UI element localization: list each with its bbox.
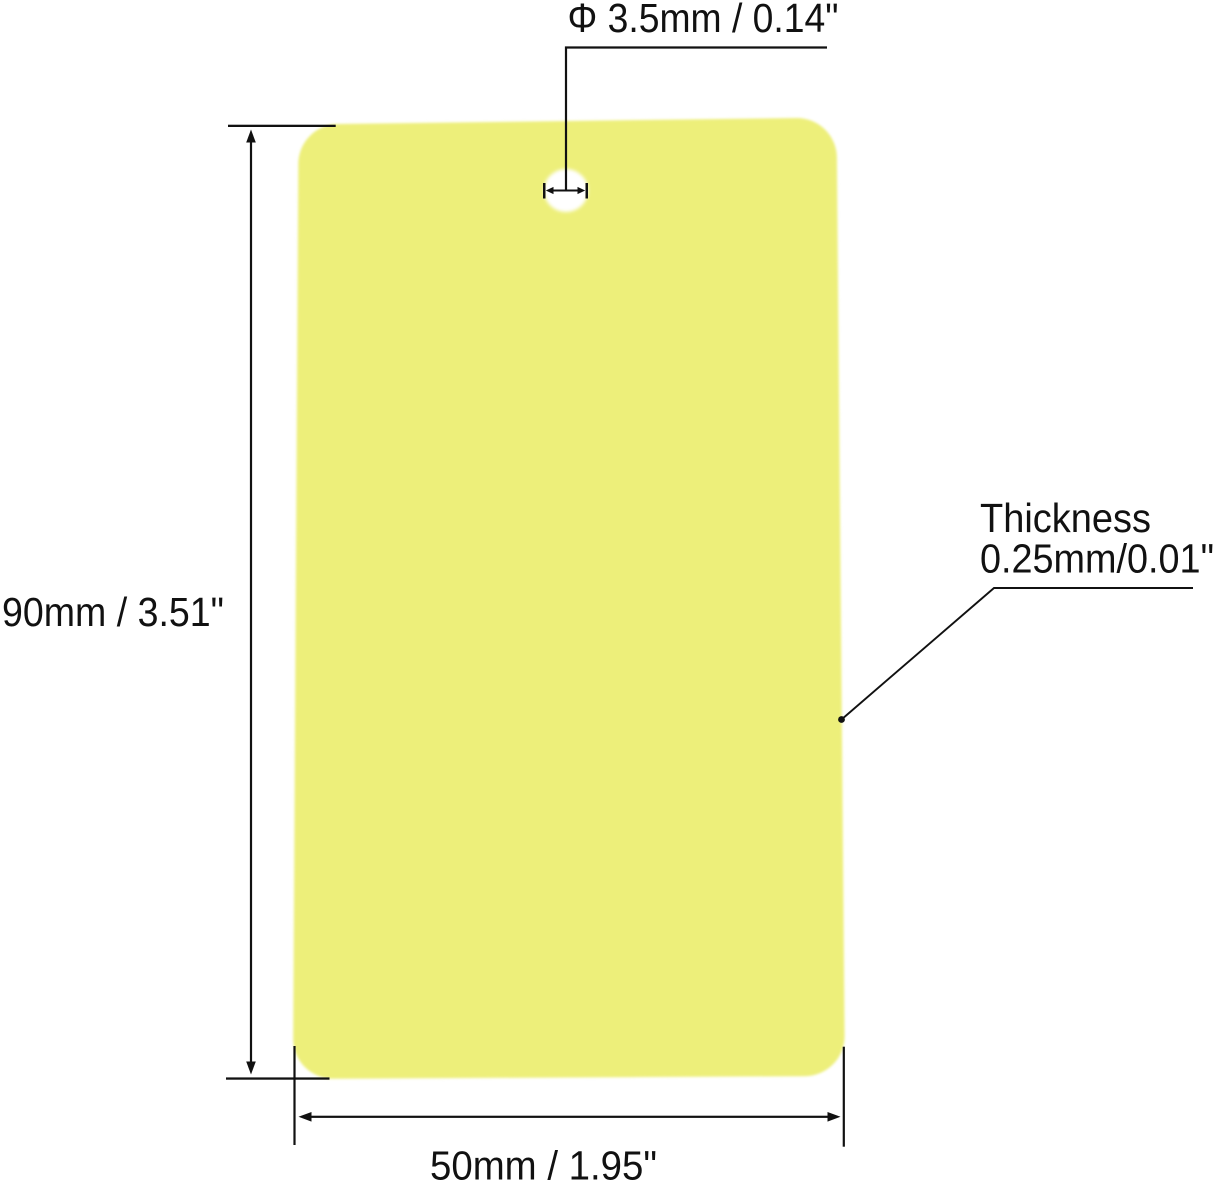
svg-text:Φ 3.5mm / 0.14": Φ 3.5mm / 0.14"	[568, 0, 839, 41]
svg-text:Thickness: Thickness	[980, 495, 1151, 541]
svg-text:0.25mm/0.01": 0.25mm/0.01"	[980, 536, 1214, 582]
svg-text:90mm / 3.51": 90mm / 3.51"	[2, 589, 224, 635]
svg-text:50mm / 1.95": 50mm / 1.95"	[430, 1143, 657, 1181]
